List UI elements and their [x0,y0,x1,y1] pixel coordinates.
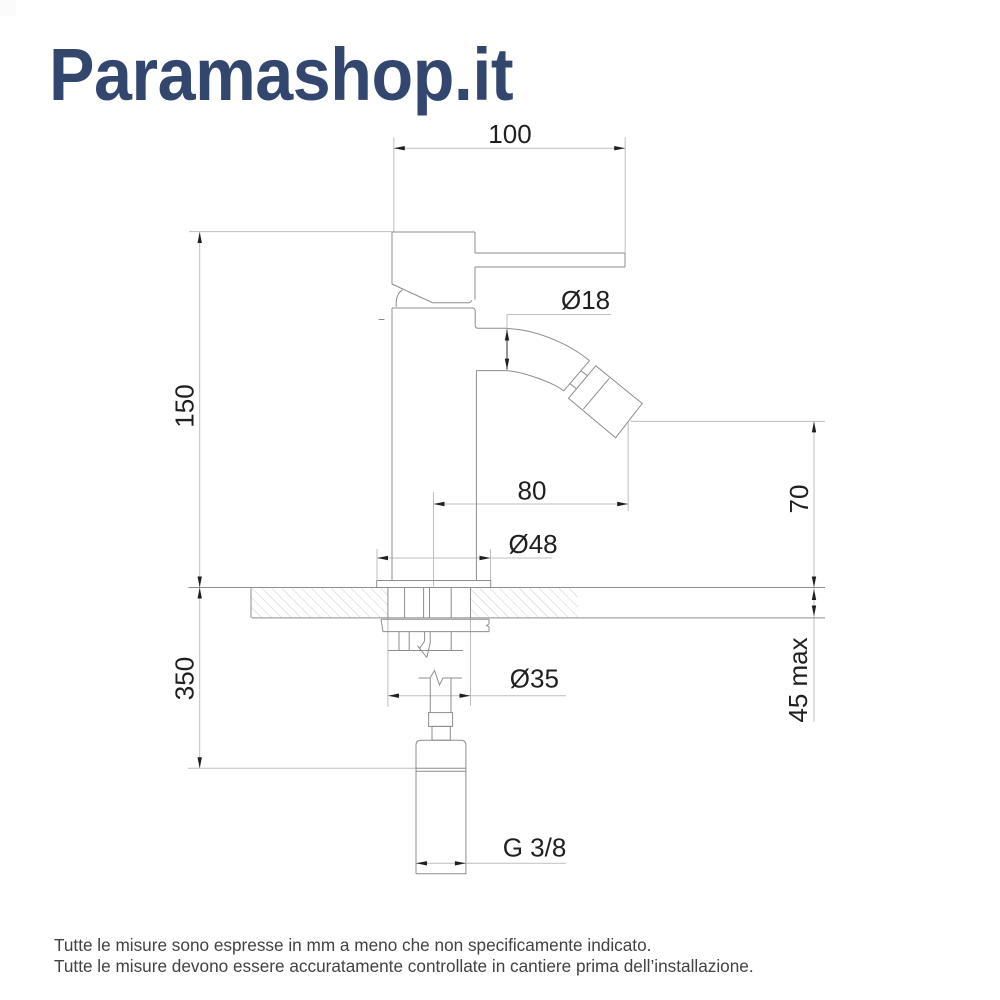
svg-text:Ø48: Ø48 [509,529,558,559]
svg-text:45 max: 45 max [783,637,813,722]
svg-text:350: 350 [170,657,200,700]
svg-text:Ø18: Ø18 [561,285,610,315]
svg-text:Ø35: Ø35 [510,664,559,694]
svg-text:100: 100 [488,119,531,149]
svg-text:G 3/8: G 3/8 [503,832,567,862]
svg-text:70: 70 [784,485,814,514]
svg-text:150: 150 [170,384,200,427]
svg-text:80: 80 [518,476,547,506]
